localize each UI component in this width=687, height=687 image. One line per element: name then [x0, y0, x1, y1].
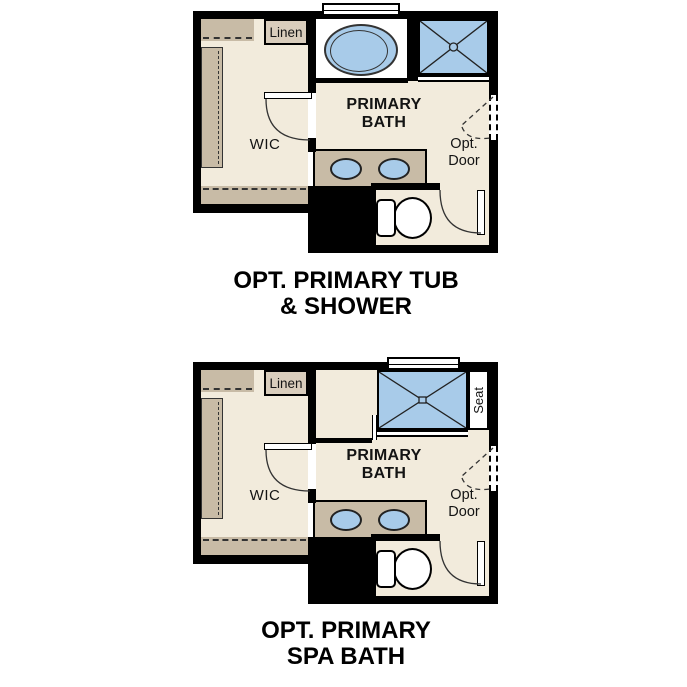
- shower-x-mark: [420, 21, 487, 73]
- caption-line1: OPT. PRIMARY: [190, 618, 502, 644]
- shower-seat: Seat: [468, 370, 489, 430]
- caption-line1: OPT. PRIMARY TUB: [190, 268, 502, 294]
- wall-wic-divider-stub: [308, 489, 316, 503]
- wic-label: WIC: [235, 136, 295, 153]
- closet-shelf-top: [201, 370, 254, 392]
- opt-door-label-line2: Door: [433, 504, 495, 521]
- toilet-fixture-tank: [376, 199, 396, 237]
- closet-shelf-top: [201, 19, 254, 41]
- caption-line2: & SHOWER: [190, 294, 502, 320]
- wic-door-leaf: [264, 92, 312, 99]
- optional-door-opening: [489, 95, 498, 140]
- linen-label: Linen: [269, 25, 302, 40]
- wall-toilet-room-bottom: [371, 245, 498, 253]
- room-label-line2: BATH: [324, 465, 444, 483]
- wall-tub-front: [310, 78, 408, 83]
- wic-label: WIC: [235, 487, 295, 504]
- wall-toilet-room-top: [371, 183, 440, 190]
- caption-tub-shower: OPT. PRIMARY TUB & SHOWER: [190, 268, 502, 320]
- room-label: PRIMARY BATH: [324, 96, 444, 132]
- shower-fixture: [418, 19, 489, 75]
- toilet-door-leaf: [477, 190, 485, 235]
- caption-line2: SPA BATH: [190, 644, 502, 670]
- wall-toilet-room-bottom: [371, 596, 498, 604]
- floorplan-tub-shower: Linen WIC PRIMARY BATH Opt. Door: [190, 3, 502, 255]
- toilet-door-leaf: [477, 541, 485, 586]
- caption-spa-bath: OPT. PRIMARY SPA BATH: [190, 618, 502, 670]
- toilet-fixture-bowl: [393, 197, 432, 239]
- opt-door-label: Opt. Door: [433, 487, 495, 521]
- wall-wic-divider-upper: [308, 370, 316, 444]
- wall-block: [308, 537, 376, 604]
- shower-door-glass: [418, 75, 489, 82]
- seat-label: Seat: [471, 387, 486, 414]
- sink-fixture-left: [330, 158, 362, 180]
- linen-label: Linen: [269, 376, 302, 391]
- shower-drain: [450, 43, 458, 51]
- closet-shelf-left: [201, 47, 223, 168]
- shower-glass-panel: [372, 415, 377, 440]
- closet-rod-dashed-line: [203, 539, 306, 541]
- bathtub-fixture: [324, 24, 398, 76]
- closet-rod-dashed-line: [218, 402, 219, 515]
- wall-wic-bottom: [193, 555, 316, 564]
- wall-tub-shower-divider: [407, 19, 418, 81]
- spa-shower-fixture: [377, 370, 468, 430]
- shower-x-mark: [379, 372, 466, 428]
- window-pane-line: [389, 364, 458, 365]
- opt-door-label: Opt. Door: [433, 136, 495, 170]
- shower-drain: [419, 397, 426, 403]
- linen-closet: Linen: [264, 370, 308, 396]
- shower-door-glass: [377, 430, 468, 437]
- room-label-line1: PRIMARY: [324, 447, 444, 465]
- wall-wic-divider-stub: [308, 138, 316, 152]
- floorplan-spa-bath: Seat Linen WIC PRIMARY BATH Opt. Door: [190, 354, 502, 606]
- sink-fixture-right: [378, 509, 410, 531]
- room-label-line2: BATH: [324, 114, 444, 132]
- opt-door-label-line2: Door: [433, 153, 495, 170]
- toilet-fixture-tank: [376, 550, 396, 588]
- wall-wic-bottom: [193, 204, 316, 213]
- closet-rod-dashed-line: [218, 51, 219, 164]
- wic-door-leaf: [264, 443, 312, 450]
- wall-right-upper: [489, 11, 498, 95]
- window: [387, 357, 460, 370]
- wall-left: [193, 11, 201, 213]
- opt-door-label-line1: Opt.: [433, 487, 495, 504]
- closet-rod-dashed-line: [203, 388, 252, 390]
- optional-door-opening: [489, 446, 498, 491]
- bathtub-basin: [330, 30, 388, 72]
- window-pane-line: [324, 10, 398, 11]
- sink-fixture-right: [378, 158, 410, 180]
- linen-closet: Linen: [264, 19, 308, 45]
- wall-toilet-room-top: [371, 534, 440, 541]
- opt-door-label-line1: Opt.: [433, 136, 495, 153]
- wall-shower-half: [308, 438, 372, 443]
- toilet-fixture-bowl: [393, 548, 432, 590]
- wall-block: [308, 186, 376, 253]
- closet-rod-dashed-line: [203, 37, 252, 39]
- window: [322, 3, 400, 16]
- closet-shelf-left: [201, 398, 223, 519]
- room-label: PRIMARY BATH: [324, 447, 444, 483]
- room-label-line1: PRIMARY: [324, 96, 444, 114]
- closet-rod-dashed-line: [203, 188, 306, 190]
- wall-right-upper: [489, 362, 498, 446]
- sink-fixture-left: [330, 509, 362, 531]
- wall-left: [193, 362, 201, 564]
